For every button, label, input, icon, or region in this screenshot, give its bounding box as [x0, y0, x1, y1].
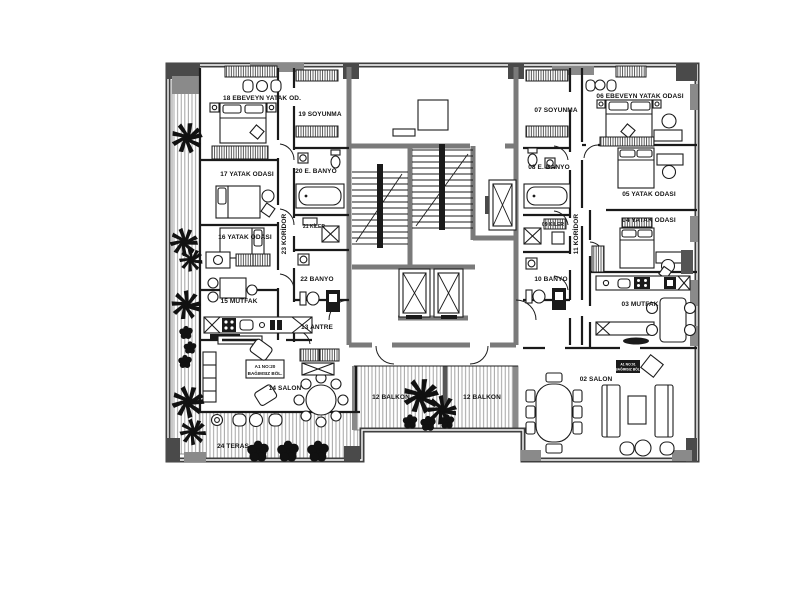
- vent-box: [393, 129, 415, 136]
- floor-plan-drawing: 18 EBEVEYN YATAK OD. 19 SOYUNMA 20 E. BA…: [0, 0, 800, 592]
- room-22-bath: [298, 254, 340, 312]
- room-label-14: 14 SALON: [269, 385, 302, 392]
- floor-plan-page: 18 EBEVEYN YATAK OD. 19 SOYUNMA 20 E. BA…: [0, 0, 800, 592]
- room-label-12-right: 12 BALKON: [463, 394, 501, 401]
- room-04-furniture: [592, 218, 693, 279]
- room-19-wardrobes: [296, 70, 338, 137]
- unit-badge-left-line1: A1 NO:20: [255, 364, 276, 369]
- room-21-pantry: [303, 218, 339, 242]
- room-label-02: 02 SALON: [580, 376, 613, 383]
- room-18-furniture: [210, 66, 281, 159]
- room-label-08: 08 E. BANYO: [528, 164, 570, 171]
- room-08-bath: [524, 148, 570, 208]
- unit-badge-right-line2: BAĞIMSIZ BÖL.: [615, 367, 641, 372]
- salon-02-furniture: [526, 355, 674, 456]
- room-label-17: 17 YATAK ODASI: [220, 171, 274, 178]
- room-10-bath: [526, 258, 566, 310]
- room-label-12-left: 12 BALKON: [372, 394, 410, 401]
- room-label-24: 24 TERAS: [217, 443, 249, 450]
- room-06-furniture: [586, 66, 682, 146]
- stair-right: [412, 144, 473, 230]
- room-label-09: 09 KİLER: [542, 221, 564, 228]
- stair-left: [352, 164, 408, 248]
- room-20-bath: [296, 150, 344, 208]
- room-15-kitchen: [204, 278, 312, 340]
- unit-badge-left-line2: BAĞIMSIZ BÖL.: [248, 369, 283, 376]
- room-label-23: 23 KORİDOR: [280, 213, 288, 254]
- room-17-furniture: [216, 186, 275, 218]
- room-label-04: 04 YATAK ODASI: [622, 217, 676, 224]
- elevator-3: [485, 180, 516, 230]
- room-label-03: 03 MUTFAK: [621, 301, 658, 308]
- room-03-kitchen: [596, 276, 696, 345]
- balcony-right-pier: [513, 366, 518, 430]
- unit-badge-right-line1: A1 NO:01: [620, 363, 635, 367]
- room-label-18: 18 EBEVEYN YATAK OD.: [223, 95, 301, 102]
- room-05-furniture: [618, 148, 683, 188]
- room-label-22: 22 BANYO: [300, 276, 333, 283]
- room-label-21: 21 KİLER: [303, 223, 325, 230]
- room-label-20: 20 E. BANYO: [295, 168, 337, 175]
- room-label-07: 07 SOYUNMA: [534, 107, 577, 114]
- room-label-10: 10 BANYO: [534, 276, 567, 283]
- room-label-05: 05 YATAK ODASI: [622, 191, 676, 198]
- room-label-16: 16 YATAK ODASI: [218, 234, 272, 241]
- core: [349, 67, 516, 345]
- room-label-13: 13 ANTRE: [301, 324, 334, 331]
- shaft-box: [418, 100, 448, 130]
- room-label-15: 15 MUTFAK: [220, 298, 257, 305]
- room-label-19: 19 SOYUNMA: [298, 111, 341, 118]
- room-07-wardrobes: [526, 70, 568, 137]
- room-label-11: 11 KORİDOR: [572, 214, 580, 255]
- elevator-1: [399, 269, 430, 319]
- room-label-06: 06 EBEVEYN YATAK ODASI: [596, 93, 683, 100]
- elevator-2: [434, 269, 463, 319]
